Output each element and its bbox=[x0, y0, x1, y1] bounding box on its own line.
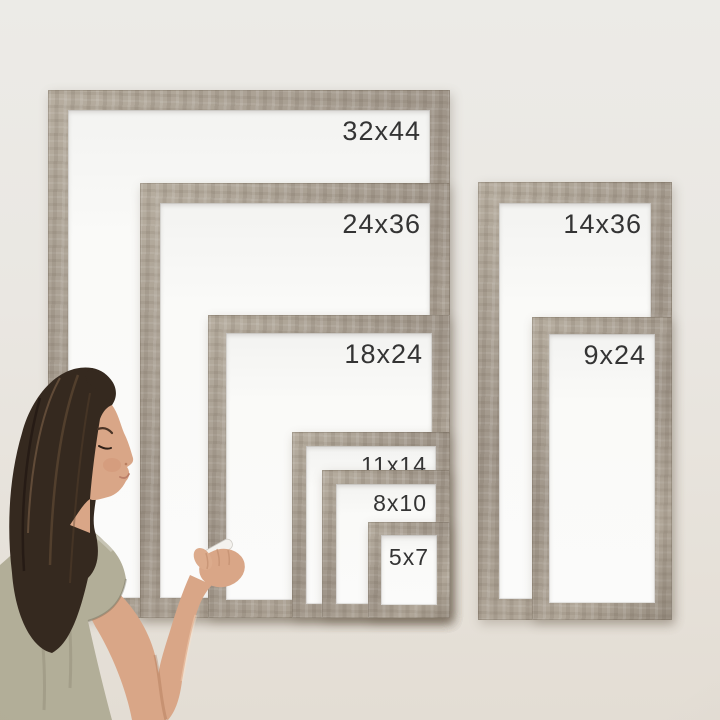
size-label: 14x36 bbox=[563, 209, 642, 240]
frame-9x24: 9x24 bbox=[532, 317, 672, 620]
nostril bbox=[125, 463, 128, 466]
size-label: 8x10 bbox=[373, 490, 427, 516]
whiteboard-surface: 5x7 bbox=[381, 535, 437, 605]
size-label: 5x7 bbox=[389, 544, 429, 570]
woman-writing-on-board bbox=[0, 353, 260, 720]
whiteboard-surface: 9x24 bbox=[549, 334, 655, 603]
cheek bbox=[103, 458, 121, 472]
size-label: 18x24 bbox=[344, 339, 423, 370]
size-label: 24x36 bbox=[342, 209, 421, 240]
frame-5x7: 5x7 bbox=[368, 522, 450, 618]
size-label: 32x44 bbox=[342, 116, 421, 147]
product-photo-frame-size-chart: 32x44 24x36 18x24 11x14 8x10 5x7 14x36 9… bbox=[0, 0, 720, 720]
size-label: 9x24 bbox=[583, 340, 646, 371]
